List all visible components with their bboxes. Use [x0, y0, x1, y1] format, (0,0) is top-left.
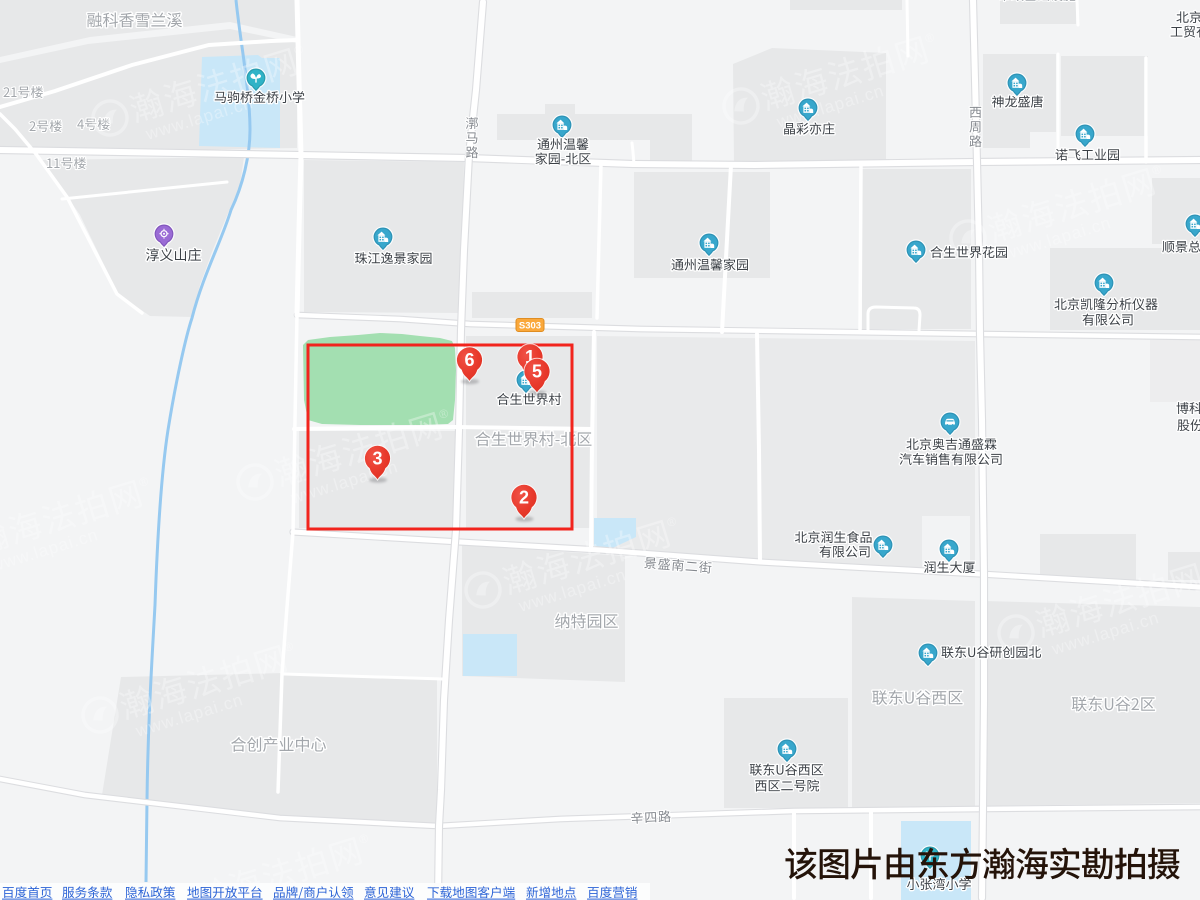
svg-text:5: 5: [532, 361, 542, 381]
svg-text:6: 6: [464, 350, 474, 370]
svg-text:3: 3: [372, 448, 382, 468]
svg-text:2: 2: [519, 487, 529, 507]
svg-text:S303: S303: [519, 321, 541, 332]
